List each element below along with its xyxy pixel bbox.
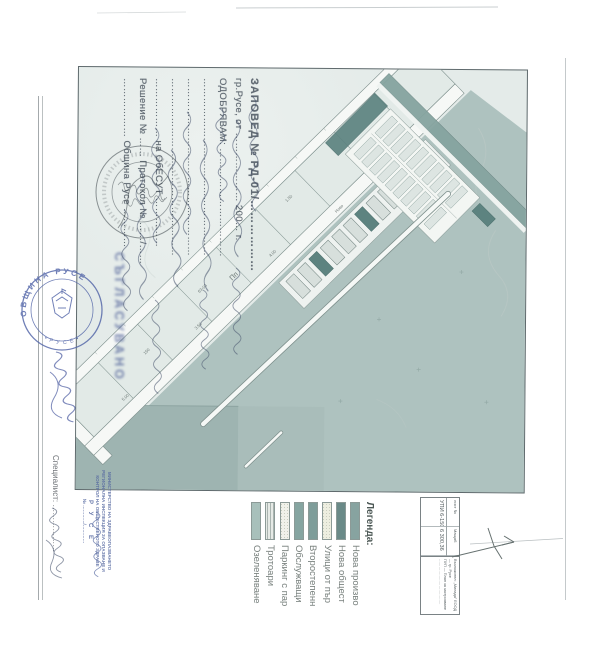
approval-order-text: ЗАПОВЕД № РД-01/……………… гр.Русе, от ……………… xyxy=(104,78,262,408)
legend: Легенда: Нова произво Нова общест Улици … xyxy=(243,502,375,662)
legend-label: Нова общест xyxy=(336,545,347,603)
legend-swatch xyxy=(308,502,318,540)
legend-item: Тротоари xyxy=(265,502,276,662)
legend-swatch xyxy=(251,502,261,540)
scanned-plan-page: { "order_block": { "title": "ЗАПОВЕД № Р… xyxy=(0,0,600,600)
legend-swatch xyxy=(294,502,304,540)
order-dotted-line: ……………………………………………… xyxy=(182,78,198,408)
legend-label: Обслужващи xyxy=(293,545,304,603)
legend-item: Улици от пър xyxy=(322,502,333,662)
legend-item: Озеленяване xyxy=(251,502,262,662)
order-dotted-line: ……………………………………………… xyxy=(198,78,214,408)
title-block-cells: лист № Мащаб УПИ 6-150 6 300,36 xyxy=(421,498,459,557)
legend-item: Второстепенн xyxy=(307,502,318,662)
ministry-number-line: № …………/………… xyxy=(81,455,87,587)
order-approve-line: ОДОБРЯВАМ: …………………………… xyxy=(214,78,230,408)
legend-swatch xyxy=(280,502,290,540)
legend-label: Нова произво xyxy=(350,545,361,606)
order-obesut-line: ……………… на ОбЕСУТ …………… xyxy=(150,78,166,408)
ministry-line: РЕГИОНАЛНА ИНСПЕКЦИЯ ЗА ОПАЗВАНЕ И xyxy=(100,455,106,587)
area-cell: 6 300,36 xyxy=(421,527,446,556)
order-dotted-line: ……………………………………………… xyxy=(166,78,182,408)
legend-item: Нова произво xyxy=(350,502,361,662)
legend-label: Улици от пър xyxy=(322,545,333,603)
legend-title: Легенда: xyxy=(364,502,375,662)
legend-swatch xyxy=(322,502,332,540)
sheet-number-label: лист № xyxy=(447,498,459,527)
client-line: Възложител: „Милада” ЕООД — гр. Русе xyxy=(447,559,457,612)
ministry-line: КОНТРОЛ НА ОБЩЕСТВЕНОТО ЗДРАВЕ xyxy=(93,455,99,587)
legend-swatch xyxy=(336,502,346,540)
signature-municipal xyxy=(50,351,78,423)
title-block: лист № Мащаб УПИ 6-150 6 300,36 Възложит… xyxy=(420,497,460,615)
specialist-line: Специалист: ……………… xyxy=(44,455,60,595)
legend-label: Тротоари xyxy=(265,545,276,586)
legend-swatch xyxy=(265,502,275,540)
plan-type-line: ПУП — План за застрояване xyxy=(442,559,447,612)
legend-label: Второстепенн xyxy=(307,545,318,606)
legend-label: Паркинг с пар xyxy=(279,545,290,606)
upi-cell: УПИ 6-150 xyxy=(421,498,446,527)
title-block-client: Възложител: „Милада” ЕООД — гр. Русе ПУП… xyxy=(421,557,459,614)
municipal-coat-of-arms xyxy=(52,289,72,318)
approved-smudge-text: СЪГЛАСУВАНО xyxy=(110,252,126,427)
ministry-line: МИНИСТЕРСТВО НА ЗДРАВЕОПАЗВАНЕТО xyxy=(106,455,112,587)
order-title: ЗАПОВЕД № РД-01/……………… xyxy=(246,78,262,408)
order-city-line: гр.Русе, от ………………… 200… г. xyxy=(230,78,246,408)
legend-item: Паркинг с пар xyxy=(279,502,290,662)
north-arrow-icon xyxy=(452,528,514,559)
legend-label: Озеленяване xyxy=(251,545,262,604)
legend-swatch xyxy=(351,502,361,540)
legend-item: Нова общест xyxy=(336,502,347,662)
dotted-line: ……………………………… xyxy=(437,559,442,612)
river-dark-fade xyxy=(238,406,325,491)
order-decision-line: Решение № …… Протокол № ……/…… xyxy=(134,78,150,408)
scale-label: Мащаб xyxy=(447,527,459,556)
ministry-stamp: МИНИСТЕРСТВО НА ЗДРАВЕОПАЗВАНЕТО РЕГИОНА… xyxy=(64,455,112,587)
legend-item: Обслужващи xyxy=(293,502,304,662)
